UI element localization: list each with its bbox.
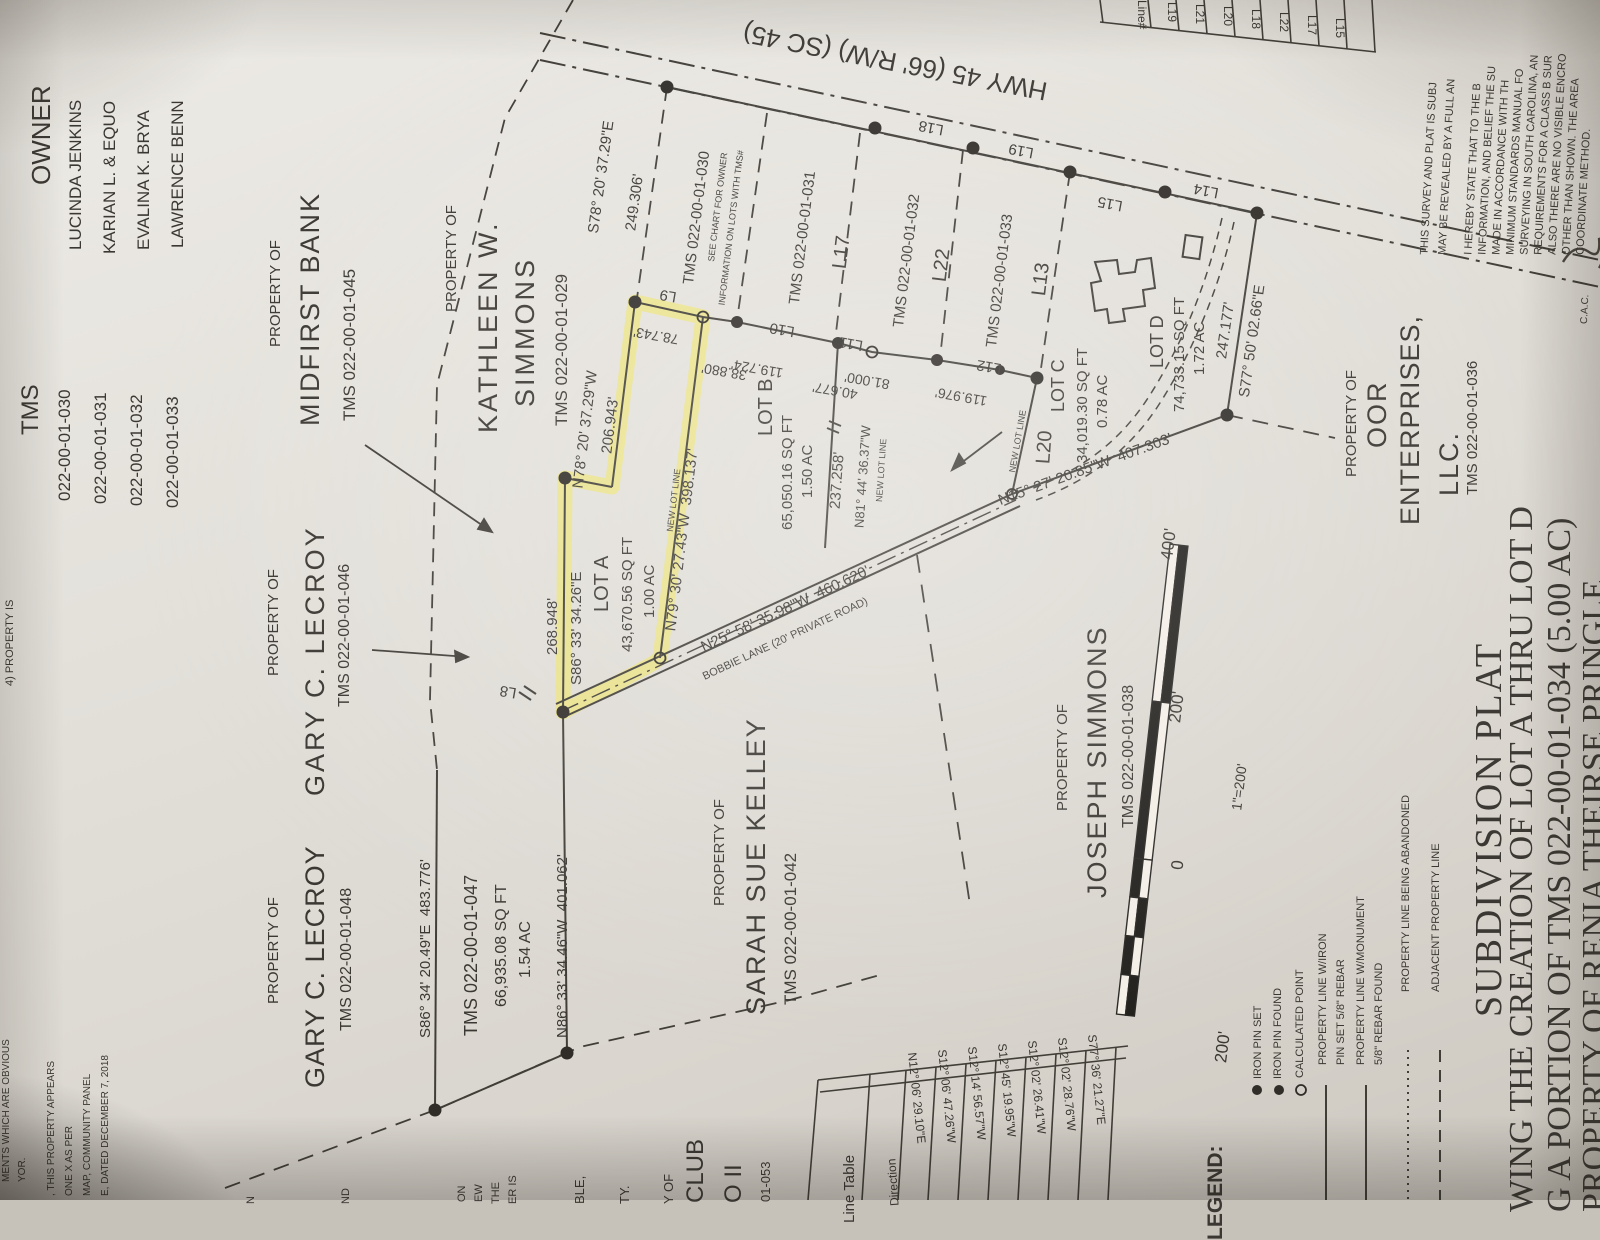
- mini-table-r2: L21: [1188, 4, 1212, 44]
- margin-note-flood-1: , THIS PROPERTY APPEARS: [44, 948, 59, 1196]
- owner-name-4: LAWRENCE BENN: [164, 0, 190, 248]
- scale-400: 400': [1147, 519, 1188, 569]
- line-l22: L22: [925, 224, 962, 283]
- line-table-direction: Direction: [879, 1129, 904, 1206]
- tms-value-4: 022-00-01-033: [160, 302, 184, 508]
- margin-note-4-property: 4) PROPERTY IS: [2, 430, 18, 686]
- edge-frag-7: BLE,: [571, 1158, 588, 1204]
- owner-oor-2: ENTERPRISES,: [1393, 275, 1427, 525]
- tms-lecroy-048: TMS 022-00-01-048: [334, 825, 360, 1031]
- mini-table-header: Line#: [1130, 0, 1154, 46]
- scale-ratio: 1"=200': [1222, 750, 1257, 825]
- mini-table-r7: L15: [1328, 18, 1352, 58]
- line-l15: L15: [1087, 188, 1133, 220]
- bearing-n86-33: N86° 33' 34.46"W 401.062': [548, 788, 576, 1038]
- property-of-midfirst: PROPERTY OF: [265, 195, 285, 347]
- scale-200-lower: 200': [1200, 1021, 1244, 1073]
- edge-frag-tms-053: 01-053: [757, 1126, 773, 1202]
- tms-lot-031: TMS 022-00-01-031: [780, 120, 830, 306]
- owner-oor-1: OOR: [1362, 352, 1392, 448]
- legend-abandoned: PROPERTY LINE BEING ABANDONED: [1398, 740, 1414, 992]
- scale-200-upper: 200': [1155, 682, 1196, 732]
- owner-oor-3: LLC.: [1434, 360, 1464, 496]
- owner-name-2: KARIAN L. & EQUO: [96, 0, 122, 254]
- edge-frag-5: THE: [489, 1164, 503, 1204]
- line-l17: L17: [825, 211, 862, 270]
- line-l9: L9: [648, 280, 688, 312]
- property-of-simmons-k: PROPERTY OF: [441, 160, 461, 312]
- owner-name-1: LUCINDA JENKINS: [62, 0, 88, 250]
- legend-prop-line-iron-2: PIN SET 5/8" REBAR: [1334, 903, 1349, 1065]
- property-of-simmons-j: PROPERTY OF: [1051, 655, 1073, 811]
- lot-d-label: LOT D: [1146, 306, 1168, 368]
- plat-content: OWNERLUCINDA JENKINSKARIAN L. & EQUOEVAL…: [0, 0, 1600, 1200]
- tms-lot-033: TMS 022-00-01-033: [977, 165, 1027, 349]
- owner-lecroy-048: GARY C. LECROY: [292, 790, 338, 1088]
- tms-value-1: 022-00-01-030: [52, 295, 76, 501]
- dist-119976: 119.976': [923, 380, 1000, 415]
- edge-frag-2: ND: [338, 1170, 354, 1204]
- margin-note-yor: YOR.: [16, 1118, 29, 1182]
- margin-note-flood-4: E, DATED DECEMBER 7, 2018: [98, 942, 113, 1196]
- edge-frag-6: ER IS: [506, 1158, 520, 1204]
- mini-table-r6: L17: [1300, 15, 1324, 55]
- legend-prop-line-mon-2: 5/8" REBAR FOUND: [1372, 913, 1387, 1065]
- property-of-lecroy-048: PROPERTY OF: [263, 848, 283, 1004]
- tms-simmons-j: TMS 022-00-01-038: [1115, 632, 1143, 828]
- lot-a-sqft: 43,670.56 SQ FT: [616, 496, 638, 652]
- owner-kathleen-2: SIMMONS: [505, 155, 545, 407]
- owner-kelley: SARAH SUE KELLEY: [734, 665, 778, 1015]
- area-047-sf: 66,935.08 SQ FT: [490, 795, 514, 1007]
- tms-029: TMS 022-00-01-029: [548, 150, 574, 426]
- property-of-oor: PROPERTY OF: [1341, 325, 1361, 477]
- scale-0: 0: [1162, 850, 1191, 881]
- title-line-3: G A PORTION OF TMS 022-00-01-034 (5.00 A…: [1542, 380, 1578, 1212]
- owner-kathleen: KATHLEEN W.: [468, 127, 508, 433]
- lot-a-acres: 1.00 AC: [638, 536, 660, 618]
- edge-frag-club: CLUB: [681, 1103, 711, 1203]
- area-047-ac: 1.54 AC: [514, 848, 538, 978]
- legend-adjacent: ADJACENT PROPERTY LINE: [1428, 790, 1445, 992]
- dist-249306: 249.306': [617, 132, 656, 233]
- mini-table-r3: L20: [1216, 6, 1240, 46]
- property-of-kelley: PROPERTY OF: [708, 760, 730, 906]
- owner-joseph-simmons: JOSEPH SIMMONS: [1074, 578, 1120, 898]
- line-l14: L14: [1183, 175, 1229, 207]
- bearing-n15-road: N15° 27' 20.85"W 407.303': [1011, 356, 1160, 581]
- tms-oor: TMS 022-00-01-036: [1462, 303, 1482, 495]
- legend-header: LEGEND:: [1195, 1148, 1235, 1240]
- line-l10: L10: [756, 314, 807, 346]
- edge-frag-3: ON: [455, 1168, 469, 1202]
- margin-note-flood-3: MAP, COMMUNITY PANEL: [80, 972, 95, 1196]
- legend-iron-pin-found: IRON PIN FOUND: [1270, 933, 1286, 1079]
- lot-b-acres: 1.50 AC: [796, 406, 818, 498]
- owner-header: OWNER: [24, 70, 58, 185]
- edge-frag-9: Y OF: [660, 1156, 676, 1204]
- tms-value-2: 022-00-01-031: [88, 298, 112, 504]
- tms-midfirst: TMS 022-00-01-045: [336, 165, 362, 421]
- line-l19: L19: [996, 134, 1046, 168]
- mini-table-r5: L22: [1272, 12, 1296, 52]
- bearing-s86-34: S86° 34' 20.49"E 483.776': [412, 788, 438, 1038]
- mini-table-r4: L18: [1244, 9, 1268, 49]
- legend-iron-pin-set: IRON PIN SET: [1250, 953, 1266, 1079]
- owner-name-3: EVALINA K. BRYA: [130, 0, 156, 250]
- lot-d-sqft: 74,733.15 SQ FT: [1169, 266, 1189, 412]
- bearing-s86-33: S86° 33' 34.26"E: [564, 503, 588, 685]
- tms-value-3: 022-00-01-032: [124, 300, 148, 506]
- edge-frag-1: N: [243, 1178, 259, 1204]
- margin-note-flood-2: ONE X AS PER: [62, 1062, 77, 1196]
- tms-kelley: TMS 022-00-01-042: [776, 735, 804, 1005]
- line-table-title: Line Table: [836, 1098, 862, 1223]
- title-line-2: WING THE CREATION OF LOT A THRU LOT D: [1504, 380, 1540, 1212]
- edge-frag-4: EW: [472, 1166, 486, 1202]
- line-l12: L12: [963, 350, 1015, 384]
- dist-268948: 268.948': [541, 543, 563, 655]
- edge-frag-oii: O II: [719, 1141, 749, 1203]
- plat-text-layer: OWNERLUCINDA JENKINSKARIAN L. & EQUOEVAL…: [0, 0, 1600, 1200]
- owner-midfirst-bank: MIDFIRST BANK: [288, 130, 332, 426]
- title-line-4: PROPERTY OF RENIA THEIRSE PRINGLE: [1578, 460, 1600, 1212]
- line-l11: L11: [826, 327, 876, 361]
- line-l8: L8: [488, 676, 528, 708]
- legend-prop-line-mon-1: PROPERTY LINE W/MONUMENT: [1354, 853, 1369, 1065]
- property-of-lecroy-046: PROPERTY OF: [263, 520, 283, 676]
- mini-table-r1: L19: [1160, 2, 1184, 42]
- tms-047: TMS 022-00-01-047: [456, 790, 486, 1036]
- legend-calculated-point: CALCULATED POINT: [1292, 918, 1309, 1078]
- tms-lecroy-046: TMS 022-00-01-046: [332, 495, 358, 707]
- tms-header: TMS: [16, 373, 46, 435]
- bearing-n79: N79° 30' 27.43"W 398.137': [655, 355, 718, 633]
- legend-prop-line-iron-1: PROPERTY LINE W/IRON: [1316, 883, 1331, 1065]
- margin-note-obvious: MENTS WHICH ARE OBVIOUS: [0, 930, 13, 1182]
- lot-d-acres: 1.72 AC: [1189, 303, 1209, 375]
- lot-a-label: LOT A: [588, 540, 616, 612]
- signature-initials: C.A.C.: [1577, 280, 1595, 325]
- edge-frag-8: TY.: [616, 1162, 633, 1204]
- line-l13: L13: [1023, 244, 1061, 298]
